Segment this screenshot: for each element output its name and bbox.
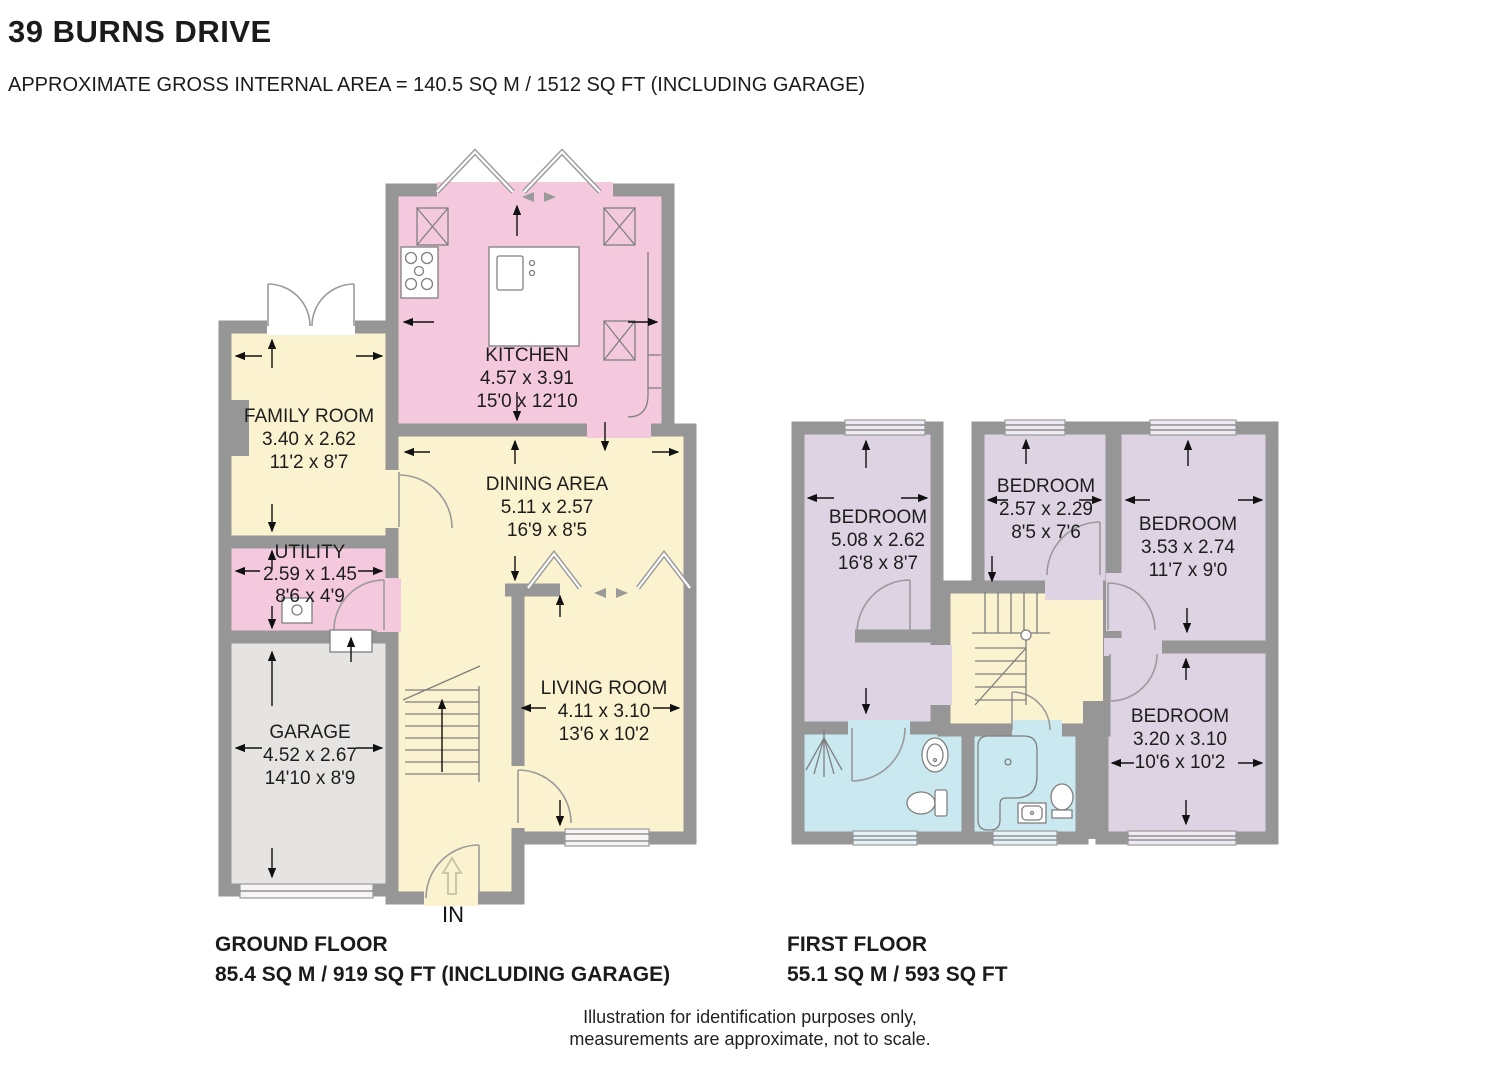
dining-area-metric: 5.11 x 2.57 (501, 497, 594, 518)
family-room-label: FAMILY ROOM (244, 406, 374, 427)
garage-imperial: 14'10 x 8'9 (265, 768, 356, 789)
living-room-imperial: 13'6 x 10'2 (559, 724, 650, 745)
bedroom4-window (1128, 831, 1236, 845)
bedroom2-window (1005, 420, 1065, 435)
ground-floor-plan: KITCHEN 4.57 x 3.91 15'0 x 12'10 FAMILY … (225, 152, 690, 927)
dining-area-label: DINING AREA (486, 474, 609, 495)
living-room-metric: 4.11 x 3.10 (558, 701, 651, 722)
disclaimer-line2: measurements are approximate, not to sca… (375, 1028, 1125, 1050)
bedroom3-imperial: 11'7 x 9'0 (1149, 560, 1228, 581)
bedroom1-label: BEDROOM (829, 507, 927, 528)
bedroom4-label: BEDROOM (1131, 706, 1229, 727)
utility-metric: 2.59 x 1.45 (263, 564, 357, 585)
sink-1 (922, 738, 948, 772)
hob (401, 247, 438, 298)
toilet-1 (907, 790, 947, 816)
floorplan-page: 39 BURNS DRIVE APPROXIMATE GROSS INTERNA… (0, 0, 1491, 1080)
entrance-label: IN (442, 902, 464, 927)
bedroom4-imperial: 10'6 x 10'2 (1135, 752, 1226, 773)
sink-2 (1018, 803, 1046, 823)
bathroom2-window (993, 831, 1057, 845)
family-room-metric: 3.40 x 2.62 (262, 429, 356, 450)
family-room-imperial: 11'2 x 8'7 (270, 452, 349, 473)
bedroom2-label: BEDROOM (997, 476, 1095, 497)
ground-floor-label-line1: GROUND FLOOR (215, 930, 670, 960)
bedroom2-metric: 2.57 x 2.29 (999, 499, 1093, 520)
living-room-window (565, 829, 649, 846)
kitchen-label: KITCHEN (485, 345, 568, 366)
bedroom3-label: BEDROOM (1139, 514, 1237, 535)
floorplan-drawing: KITCHEN 4.57 x 3.91 15'0 x 12'10 FAMILY … (0, 0, 1491, 1080)
toilet-2 (1051, 784, 1073, 818)
kitchen-imperial: 15'0 x 12'10 (476, 391, 577, 412)
garage-label: GARAGE (269, 722, 350, 743)
bathroom1-window (853, 831, 917, 845)
utility-imperial: 8'6 x 4'9 (275, 586, 345, 607)
garage-metric: 4.52 x 2.67 (263, 745, 357, 766)
disclaimer: Illustration for identification purposes… (375, 1006, 1125, 1050)
first-floor-plan: BEDROOM 5.08 x 2.62 16'8 x 8'7 BEDROOM 2… (798, 420, 1272, 845)
first-floor-label-line2: 55.1 SQ M / 593 SQ FT (787, 960, 1008, 990)
ground-floor-label: GROUND FLOOR 85.4 SQ M / 919 SQ FT (INCL… (215, 930, 670, 990)
garage-door (240, 884, 373, 898)
utility-label: UTILITY (275, 542, 346, 563)
kitchen-metric: 4.57 x 3.91 (480, 368, 574, 389)
room-bedroom1-shape (798, 428, 937, 728)
kitchen-island (489, 247, 579, 346)
bedroom1-imperial: 16'8 x 8'7 (838, 553, 918, 574)
bedroom2-imperial: 8'5 x 7'6 (1011, 522, 1081, 543)
bedroom3-metric: 3.53 x 2.74 (1141, 537, 1235, 558)
bedroom3-window (1150, 420, 1236, 435)
living-room-label: LIVING ROOM (541, 678, 668, 699)
bedroom4-metric: 3.20 x 3.10 (1133, 729, 1227, 750)
first-floor-label: FIRST FLOOR 55.1 SQ M / 593 SQ FT (787, 930, 1008, 990)
first-floor-label-line1: FIRST FLOOR (787, 930, 1008, 960)
ground-floor-label-line2: 85.4 SQ M / 919 SQ FT (INCLUDING GARAGE) (215, 960, 670, 990)
disclaimer-line1: Illustration for identification purposes… (375, 1006, 1125, 1028)
bedroom1-metric: 5.08 x 2.62 (831, 530, 925, 551)
bedroom1-window (845, 420, 925, 435)
dining-area-imperial: 16'9 x 8'5 (507, 520, 587, 541)
